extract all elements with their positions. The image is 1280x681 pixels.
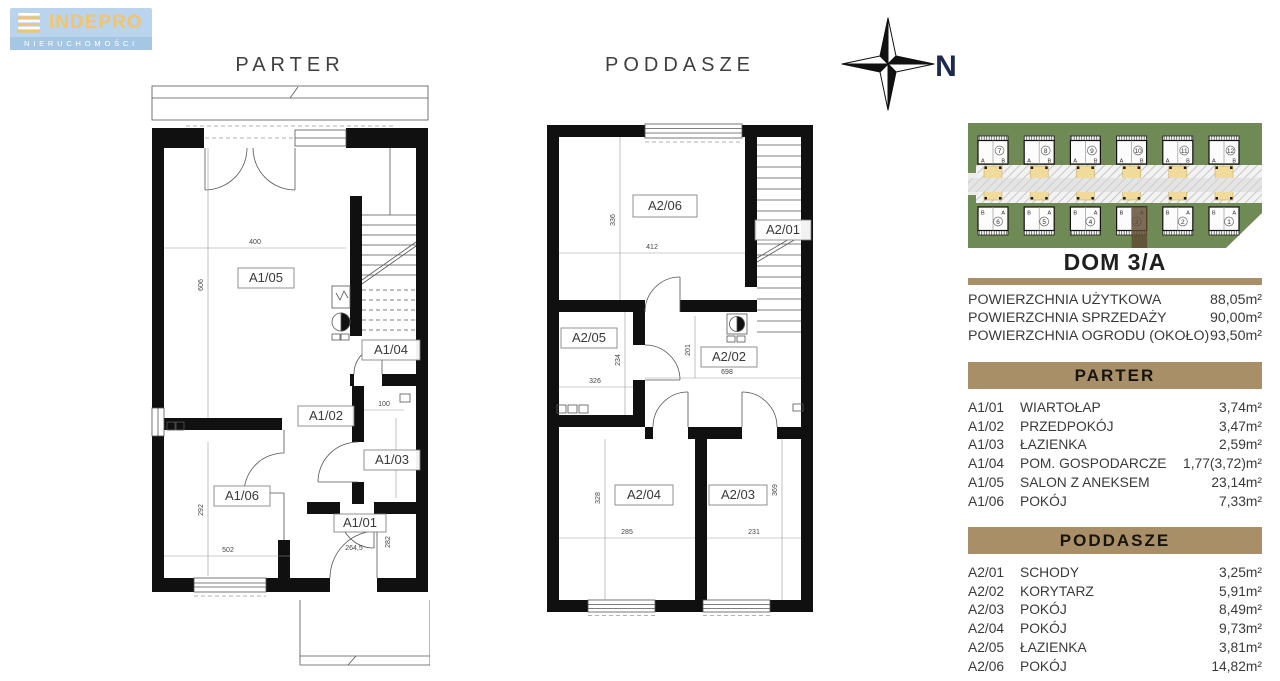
site-house-5: 5BA (1024, 207, 1054, 235)
house-number: 12 (1227, 148, 1235, 155)
logo-stack-icon (15, 11, 45, 35)
house-letter: A (1073, 159, 1077, 165)
roof-edge (1209, 136, 1239, 141)
highlighted-unit-overlay (1132, 207, 1148, 248)
site-house-12: 12AB (1209, 136, 1239, 165)
parking-corner-tick (1031, 197, 1034, 200)
parking-corner-tick (1091, 197, 1094, 200)
house-letter: B (1140, 159, 1144, 165)
site-house-9: 9AB (1070, 136, 1100, 165)
table-row: A1/02 PRZEDPOKÓJ 3,47m² (968, 418, 1262, 437)
poddasze-title: PODDASZE (545, 54, 815, 77)
table-row: A1/05 SALON Z ANEKSEM 23,14m² (968, 474, 1262, 493)
parking-corner-tick (1230, 197, 1233, 200)
house-number: 2 (1181, 219, 1185, 226)
summary-row: POWIERZCHNIA UŻYTKOWA 88,05m² (968, 291, 1262, 309)
house-title: DOM 3/A (968, 249, 1262, 276)
house-letter: A (1186, 211, 1190, 217)
poddasze-room-table: A2/01 SCHODY 3,25m² A2/02 KORYTARZ 5,91m… (968, 564, 1262, 676)
parking-corner-tick (1091, 167, 1094, 170)
table-row: A1/04 POM. GOSPODARCZE 1,77(3,72)m² (968, 455, 1262, 474)
site-plan: 7AB6BA8AB5BA9AB4BA10AB3BA11AB2BA12AB1BA (968, 123, 1262, 248)
summary-label: POWIERZCHNIA UŻYTKOWA (968, 291, 1161, 309)
svg-text:231: 231 (748, 529, 760, 536)
window-icon (588, 600, 655, 612)
room-name: ŁAZIENKA (1020, 639, 1219, 658)
section-header-poddasze: PODDASZE (968, 527, 1262, 554)
house-letter: B (1232, 159, 1236, 165)
table-row: A1/06 POKÓJ 7,33m² (968, 493, 1262, 512)
svg-text:282: 282 (385, 536, 392, 548)
room-label: A1/05 (249, 270, 283, 285)
parking-corner-tick (1045, 167, 1048, 170)
house-number: 10 (1134, 148, 1142, 155)
roof-edge (1024, 231, 1054, 236)
parking-corner-tick (1216, 167, 1219, 170)
room-name: POM. GOSPODARCZE (1020, 455, 1183, 474)
summary-label: POWIERZCHNIA SPRZEDAŻY (968, 309, 1167, 327)
room-area: 2,59m² (1219, 436, 1262, 455)
room-label: A2/06 (648, 198, 682, 213)
house-letter: B (1166, 211, 1170, 217)
site-house-10: 10AB (1117, 136, 1147, 165)
summary-row: POWIERZCHNIA OGRODU (OKOŁO) 93,50m² (968, 327, 1262, 345)
house-number: 6 (996, 219, 1000, 226)
room-area: 3,74m² (1219, 399, 1262, 418)
house-letter: A (1001, 211, 1005, 217)
window-icon (194, 578, 266, 592)
house-letter: B (1073, 211, 1077, 217)
parter-title: PARTER (150, 54, 430, 77)
svg-text:201: 201 (685, 344, 692, 356)
area-summary: POWIERZCHNIA UŻYTKOWA 88,05m² POWIERZCHN… (968, 291, 1262, 345)
house-letter: B (1001, 159, 1005, 165)
table-row: A2/05 ŁAZIENKA 3,81m² (968, 639, 1262, 658)
room-area: 3,47m² (1219, 418, 1262, 437)
road-center-hatch (968, 178, 1262, 192)
parter-room-table: A1/01 WIARTOŁAP 3,74m² A1/02 PRZEDPOKÓJ … (968, 399, 1262, 511)
room-label: A1/01 (343, 515, 377, 530)
washbasin-icon (557, 405, 588, 413)
house-letter: B (1048, 159, 1052, 165)
site-house-6: 6BA (978, 207, 1008, 235)
room-label: A2/01 (766, 222, 800, 237)
parking-corner-tick (1077, 197, 1080, 200)
summary-value: 93,50m² (1210, 327, 1262, 345)
parking-corner-tick (999, 197, 1002, 200)
table-row: A1/03 ŁAZIENKA 2,59m² (968, 436, 1262, 455)
room-code: A2/03 (968, 601, 1020, 620)
house-letter: B (1027, 211, 1031, 217)
house-number: 4 (1089, 219, 1093, 226)
room-label: A2/04 (627, 487, 661, 502)
table-row: A2/06 POKÓJ 14,82m² (968, 658, 1262, 677)
room-name: POKÓJ (1020, 601, 1219, 620)
roof-edge (1070, 136, 1100, 141)
room-code: A2/02 (968, 583, 1020, 602)
house-number: 5 (1042, 219, 1046, 226)
svg-text:328: 328 (595, 492, 602, 504)
parking-corner-tick (1138, 167, 1141, 170)
room-label: A1/06 (225, 488, 259, 503)
title-divider (968, 278, 1262, 285)
entry-porch (300, 600, 430, 665)
room-area: 14,82m² (1211, 658, 1262, 677)
room-name: SCHODY (1020, 564, 1219, 583)
parking-corner-tick (1230, 167, 1233, 170)
parking-corner-tick (999, 167, 1002, 170)
svg-text:369: 369 (772, 484, 779, 496)
room-label: A1/02 (309, 408, 343, 423)
room-area: 1,77(3,72)m² (1183, 455, 1262, 474)
parking-corner-tick (1184, 167, 1187, 170)
house-number: 7 (998, 148, 1002, 155)
room-name: POKÓJ (1020, 493, 1219, 512)
room-name: ŁAZIENKA (1020, 436, 1219, 455)
poddasze-floor-plan: 336 412 234 326 201 698 328 285 369 231 … (545, 120, 815, 620)
terrace (152, 86, 428, 120)
house-number: 1 (1227, 219, 1231, 226)
room-code: A2/05 (968, 639, 1020, 658)
svg-text:100: 100 (378, 401, 390, 408)
door-arcs (244, 346, 382, 578)
north-label: N (935, 50, 957, 83)
room-label: A2/05 (572, 330, 606, 345)
site-house-8: 8AB (1024, 136, 1054, 165)
room-code: A1/03 (968, 436, 1020, 455)
house-number: 9 (1090, 148, 1094, 155)
house-letter: A (1094, 211, 1098, 217)
window-icon (645, 124, 742, 138)
house-letter: A (1048, 211, 1052, 217)
parter-room-labels: A1/05 A1/04 A1/02 A1/03 A1/06 A1/01 (214, 268, 420, 532)
roof-edge (1209, 231, 1239, 236)
room-area: 3,25m² (1219, 564, 1262, 583)
room-name: WIARTOŁAP (1020, 399, 1219, 418)
parking-corner-tick (1123, 167, 1126, 170)
svg-text:606: 606 (198, 279, 205, 291)
floor-plan-sheet: INDEPRO NIERUCHOMOŚCI PARTER PODDASZE N (0, 0, 1280, 681)
house-letter: B (1212, 211, 1216, 217)
table-row: A2/02 KORYTARZ 5,91m² (968, 583, 1262, 602)
site-house-7: 7AB (978, 136, 1008, 165)
compass-rose: N (836, 10, 966, 114)
roof-edge (1163, 231, 1193, 236)
summary-value: 88,05m² (1210, 291, 1262, 309)
site-house-2: 2BA (1163, 207, 1193, 235)
parking-corner-tick (1031, 167, 1034, 170)
indepro-logo: INDEPRO NIERUCHOMOŚCI (10, 8, 152, 50)
site-house-4: 4BA (1070, 207, 1100, 235)
room-area: 23,14m² (1211, 474, 1262, 493)
svg-text:234: 234 (615, 354, 622, 366)
house-letter: A (1027, 159, 1031, 165)
roof-edge (978, 136, 1008, 141)
sink-icon (400, 394, 410, 402)
parking-corner-tick (1169, 167, 1172, 170)
house-letter: A (1232, 211, 1236, 217)
room-label: A2/03 (721, 487, 755, 502)
room-label: A1/04 (374, 342, 408, 357)
room-code: A1/04 (968, 455, 1020, 474)
room-code: A2/04 (968, 620, 1020, 639)
svg-text:400: 400 (249, 239, 261, 246)
house-letter: A (1120, 159, 1124, 165)
house-letter: A (1212, 159, 1216, 165)
room-area: 3,81m² (1219, 639, 1262, 658)
stairs-icon (362, 148, 416, 330)
parking-corner-tick (1184, 197, 1187, 200)
washer-icon (332, 286, 350, 340)
room-area: 8,49m² (1219, 601, 1262, 620)
window-icon (703, 600, 770, 612)
roof-edge (1024, 136, 1054, 141)
parking-corner-tick (1077, 167, 1080, 170)
house-letter: B (981, 211, 985, 217)
roof-edge (1070, 231, 1100, 236)
compass-star (842, 18, 934, 110)
table-row: A1/01 WIARTOŁAP 3,74m² (968, 399, 1262, 418)
room-label: A2/02 (712, 349, 746, 364)
parking-corner-tick (985, 197, 988, 200)
svg-text:285: 285 (621, 529, 633, 536)
roof-edge (1117, 136, 1147, 141)
roof-edge (978, 231, 1008, 236)
svg-text:336: 336 (610, 214, 617, 226)
room-area: 9,73m² (1219, 620, 1262, 639)
site-house-1: 1BA (1209, 207, 1239, 235)
svg-text:264,5: 264,5 (345, 545, 363, 552)
parking-corner-tick (985, 167, 988, 170)
parking-corner-tick (1169, 197, 1172, 200)
house-letter: B (1120, 211, 1124, 217)
svg-text:698: 698 (721, 369, 733, 376)
summary-value: 90,00m² (1210, 309, 1262, 327)
room-label: A1/03 (375, 452, 409, 467)
house-letter: B (1094, 159, 1098, 165)
house-number: 8 (1044, 148, 1048, 155)
parking-corner-tick (1123, 197, 1126, 200)
terrace-door-icon (205, 148, 295, 190)
summary-row: POWIERZCHNIA SPRZEDAŻY 90,00m² (968, 309, 1262, 327)
svg-text:292: 292 (198, 504, 205, 516)
parking-corner-tick (1216, 197, 1219, 200)
house-letter: A (981, 159, 985, 165)
house-number: 11 (1181, 148, 1188, 155)
room-area: 5,91m² (1219, 583, 1262, 602)
washer-icon (727, 314, 747, 342)
room-name: POKÓJ (1020, 658, 1211, 677)
logo-subtitle: NIERUCHOMOŚCI (10, 37, 152, 50)
house-letter: B (1186, 159, 1190, 165)
table-row: A2/03 POKÓJ 8,49m² (968, 601, 1262, 620)
room-code: A2/06 (968, 658, 1020, 677)
svg-text:502: 502 (222, 547, 234, 554)
svg-text:412: 412 (646, 244, 658, 251)
room-code: A1/06 (968, 493, 1020, 512)
site-house-11: 11AB (1163, 136, 1193, 165)
parking-corner-tick (1045, 197, 1048, 200)
table-row: A2/01 SCHODY 3,25m² (968, 564, 1262, 583)
room-name: PRZEDPOKÓJ (1020, 418, 1219, 437)
room-name: POKÓJ (1020, 620, 1219, 639)
parter-floor-plan: 400 606 100 259 292 502 264,5 282 A1/05 … (150, 78, 430, 678)
section-header-parter: PARTER (968, 362, 1262, 389)
roof-edge (1163, 136, 1193, 141)
room-code: A2/01 (968, 564, 1020, 583)
room-name: KORYTARZ (1020, 583, 1219, 602)
house-letter: A (1166, 159, 1170, 165)
svg-text:326: 326 (589, 378, 601, 385)
room-code: A1/01 (968, 399, 1020, 418)
room-code: A1/05 (968, 474, 1020, 493)
parking-corner-tick (1138, 197, 1141, 200)
room-code: A1/02 (968, 418, 1020, 437)
summary-label: POWIERZCHNIA OGRODU (OKOŁO) (968, 327, 1209, 345)
table-row: A2/04 POKÓJ 9,73m² (968, 620, 1262, 639)
room-name: SALON Z ANEKSEM (1020, 474, 1211, 493)
room-area: 7,33m² (1219, 493, 1262, 512)
logo-title: INDEPRO (49, 12, 143, 34)
